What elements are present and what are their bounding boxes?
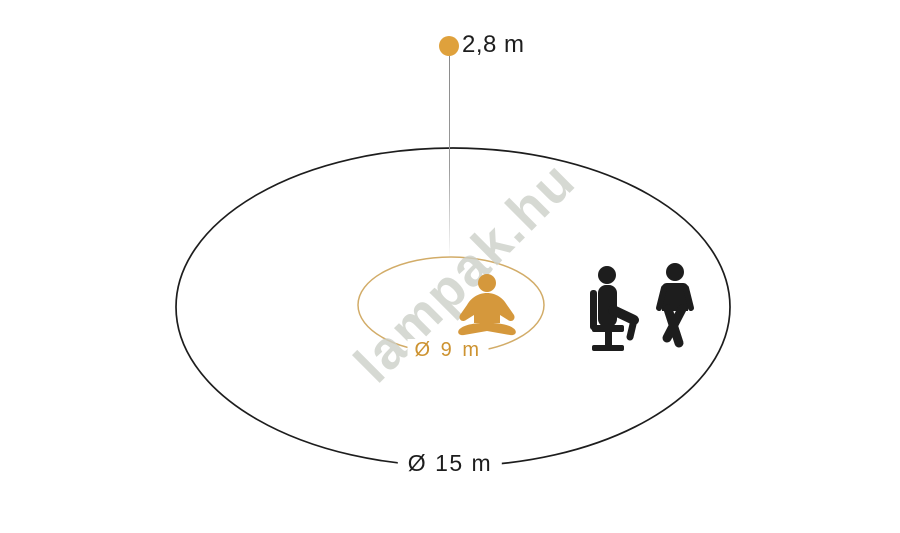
mounting-drop-line [449,56,450,258]
lamp-dot-icon [439,36,459,56]
detection-range-diagram: 2,8 m lampak.hu [0,0,900,533]
outer-zone-diameter-label: Ø 15 m [398,450,502,477]
inner-zone-diameter-label: Ø 9 m [408,339,489,362]
meditating-person-icon [452,272,524,342]
walking-person-icon [654,261,696,351]
person-on-office-chair-icon [586,262,642,354]
mounting-height-label: 2,8 m [462,31,525,59]
